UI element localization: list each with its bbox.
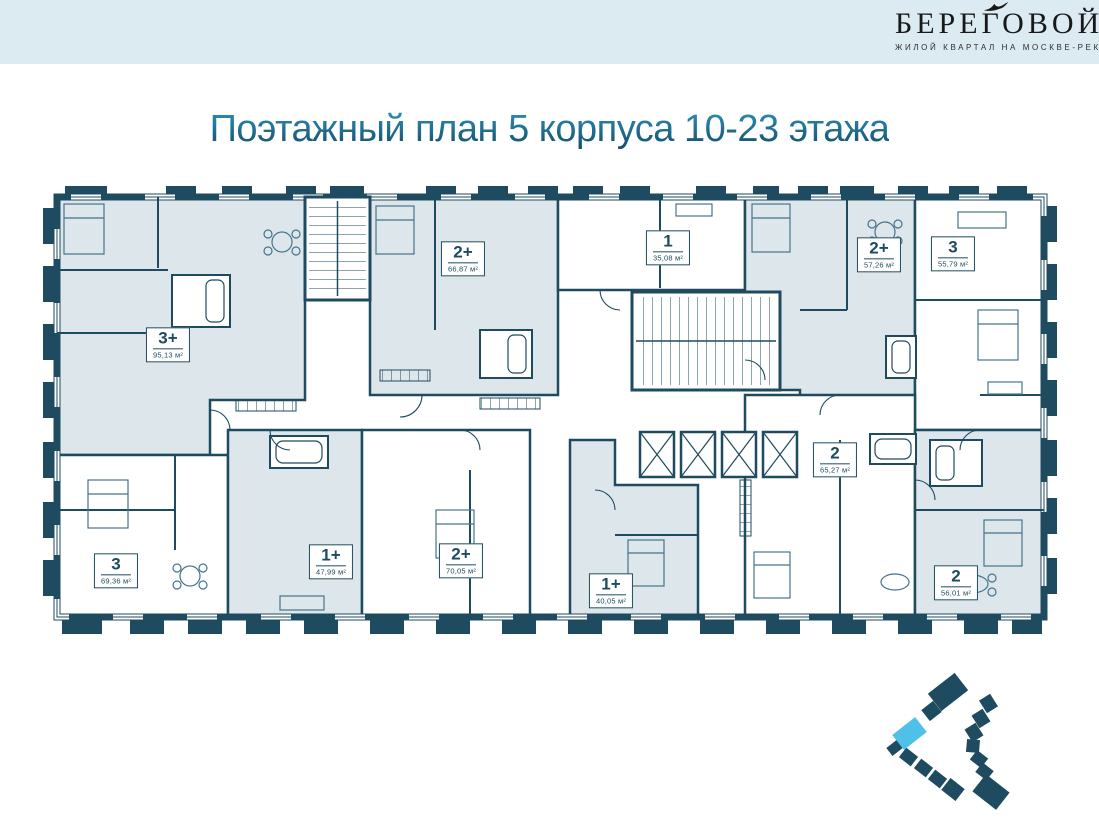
apartment-label-2plus-66: 2+ 66,87 м² (441, 241, 485, 276)
apartment-rooms: 3 (101, 555, 131, 575)
apartment-rooms: 1 (653, 232, 683, 252)
floor-plan-drawing (40, 180, 1060, 640)
apartment-rooms: 3 (938, 238, 968, 258)
apartment-area: 65,27 м² (820, 464, 850, 475)
apartment-rooms: 2 (941, 567, 971, 587)
apartment-label-1plus-40: 1+ 40,05 м² (589, 573, 633, 608)
apartment-region-3-69 (57, 455, 228, 617)
header-bar: БЕРЕГОВОЙ ЖИЛОЙ КВАРТАЛ НА МОСКВЕ-РЕКЕ (0, 0, 1099, 64)
logo-subtitle: ЖИЛОЙ КВАРТАЛ НА МОСКВЕ-РЕКЕ (895, 43, 1091, 52)
apartment-rooms: 1+ (596, 575, 626, 595)
logo-bird-icon (983, 1, 1009, 13)
apartment-label-1-35: 1 35,08 м² (646, 230, 690, 265)
apartment-rooms: 2+ (446, 545, 476, 565)
page-title: Поэтажный план 5 корпуса 10-23 этажа (210, 108, 890, 151)
apartment-area: 40,05 м² (596, 595, 626, 606)
apartment-rooms: 2+ (448, 243, 478, 263)
apartment-area: 55,79 м² (938, 258, 968, 269)
apartment-rooms: 2 (820, 444, 850, 464)
apartment-area: 47,99 м² (316, 566, 346, 577)
apartment-region-2-65 (745, 395, 915, 617)
apartment-area: 66,87 м² (448, 263, 478, 274)
apartment-label-2-56: 2 56,01 м² (934, 565, 978, 600)
apartment-area: 70,05 м² (446, 565, 476, 576)
apartment-label-1plus-47: 1+ 47,99 м² (309, 544, 353, 579)
apartment-rooms: 2+ (864, 239, 894, 259)
apartment-label-2-65: 2 65,27 м² (813, 442, 857, 477)
apartment-label-3-69: 3 69,36 м² (94, 553, 138, 588)
apartment-label-2plus-70: 2+ 70,05 м² (439, 543, 483, 578)
apartment-area: 57,26 м² (864, 259, 894, 270)
apartment-rooms: 1+ (316, 546, 346, 566)
apartment-label-2plus-57: 2+ 57,26 м² (857, 237, 901, 272)
apartment-area: 35,08 м² (653, 252, 683, 263)
brand-logo: БЕРЕГОВОЙ ЖИЛОЙ КВАРТАЛ НА МОСКВЕ-РЕКЕ (895, 8, 1091, 60)
apartment-label-3-55: 3 55,79 м² (931, 236, 975, 271)
apartment-area: 95,13 м² (153, 349, 183, 360)
elevator-shafts (640, 432, 797, 477)
apartment-area: 69,36 м² (101, 575, 131, 586)
apartment-area: 56,01 м² (941, 587, 971, 598)
building-locator (878, 658, 1073, 823)
apartment-rooms: 3+ (153, 329, 183, 349)
apartment-label-3plus-95: 3+ 95,13 м² (146, 327, 190, 362)
floor-plan (40, 180, 1060, 640)
